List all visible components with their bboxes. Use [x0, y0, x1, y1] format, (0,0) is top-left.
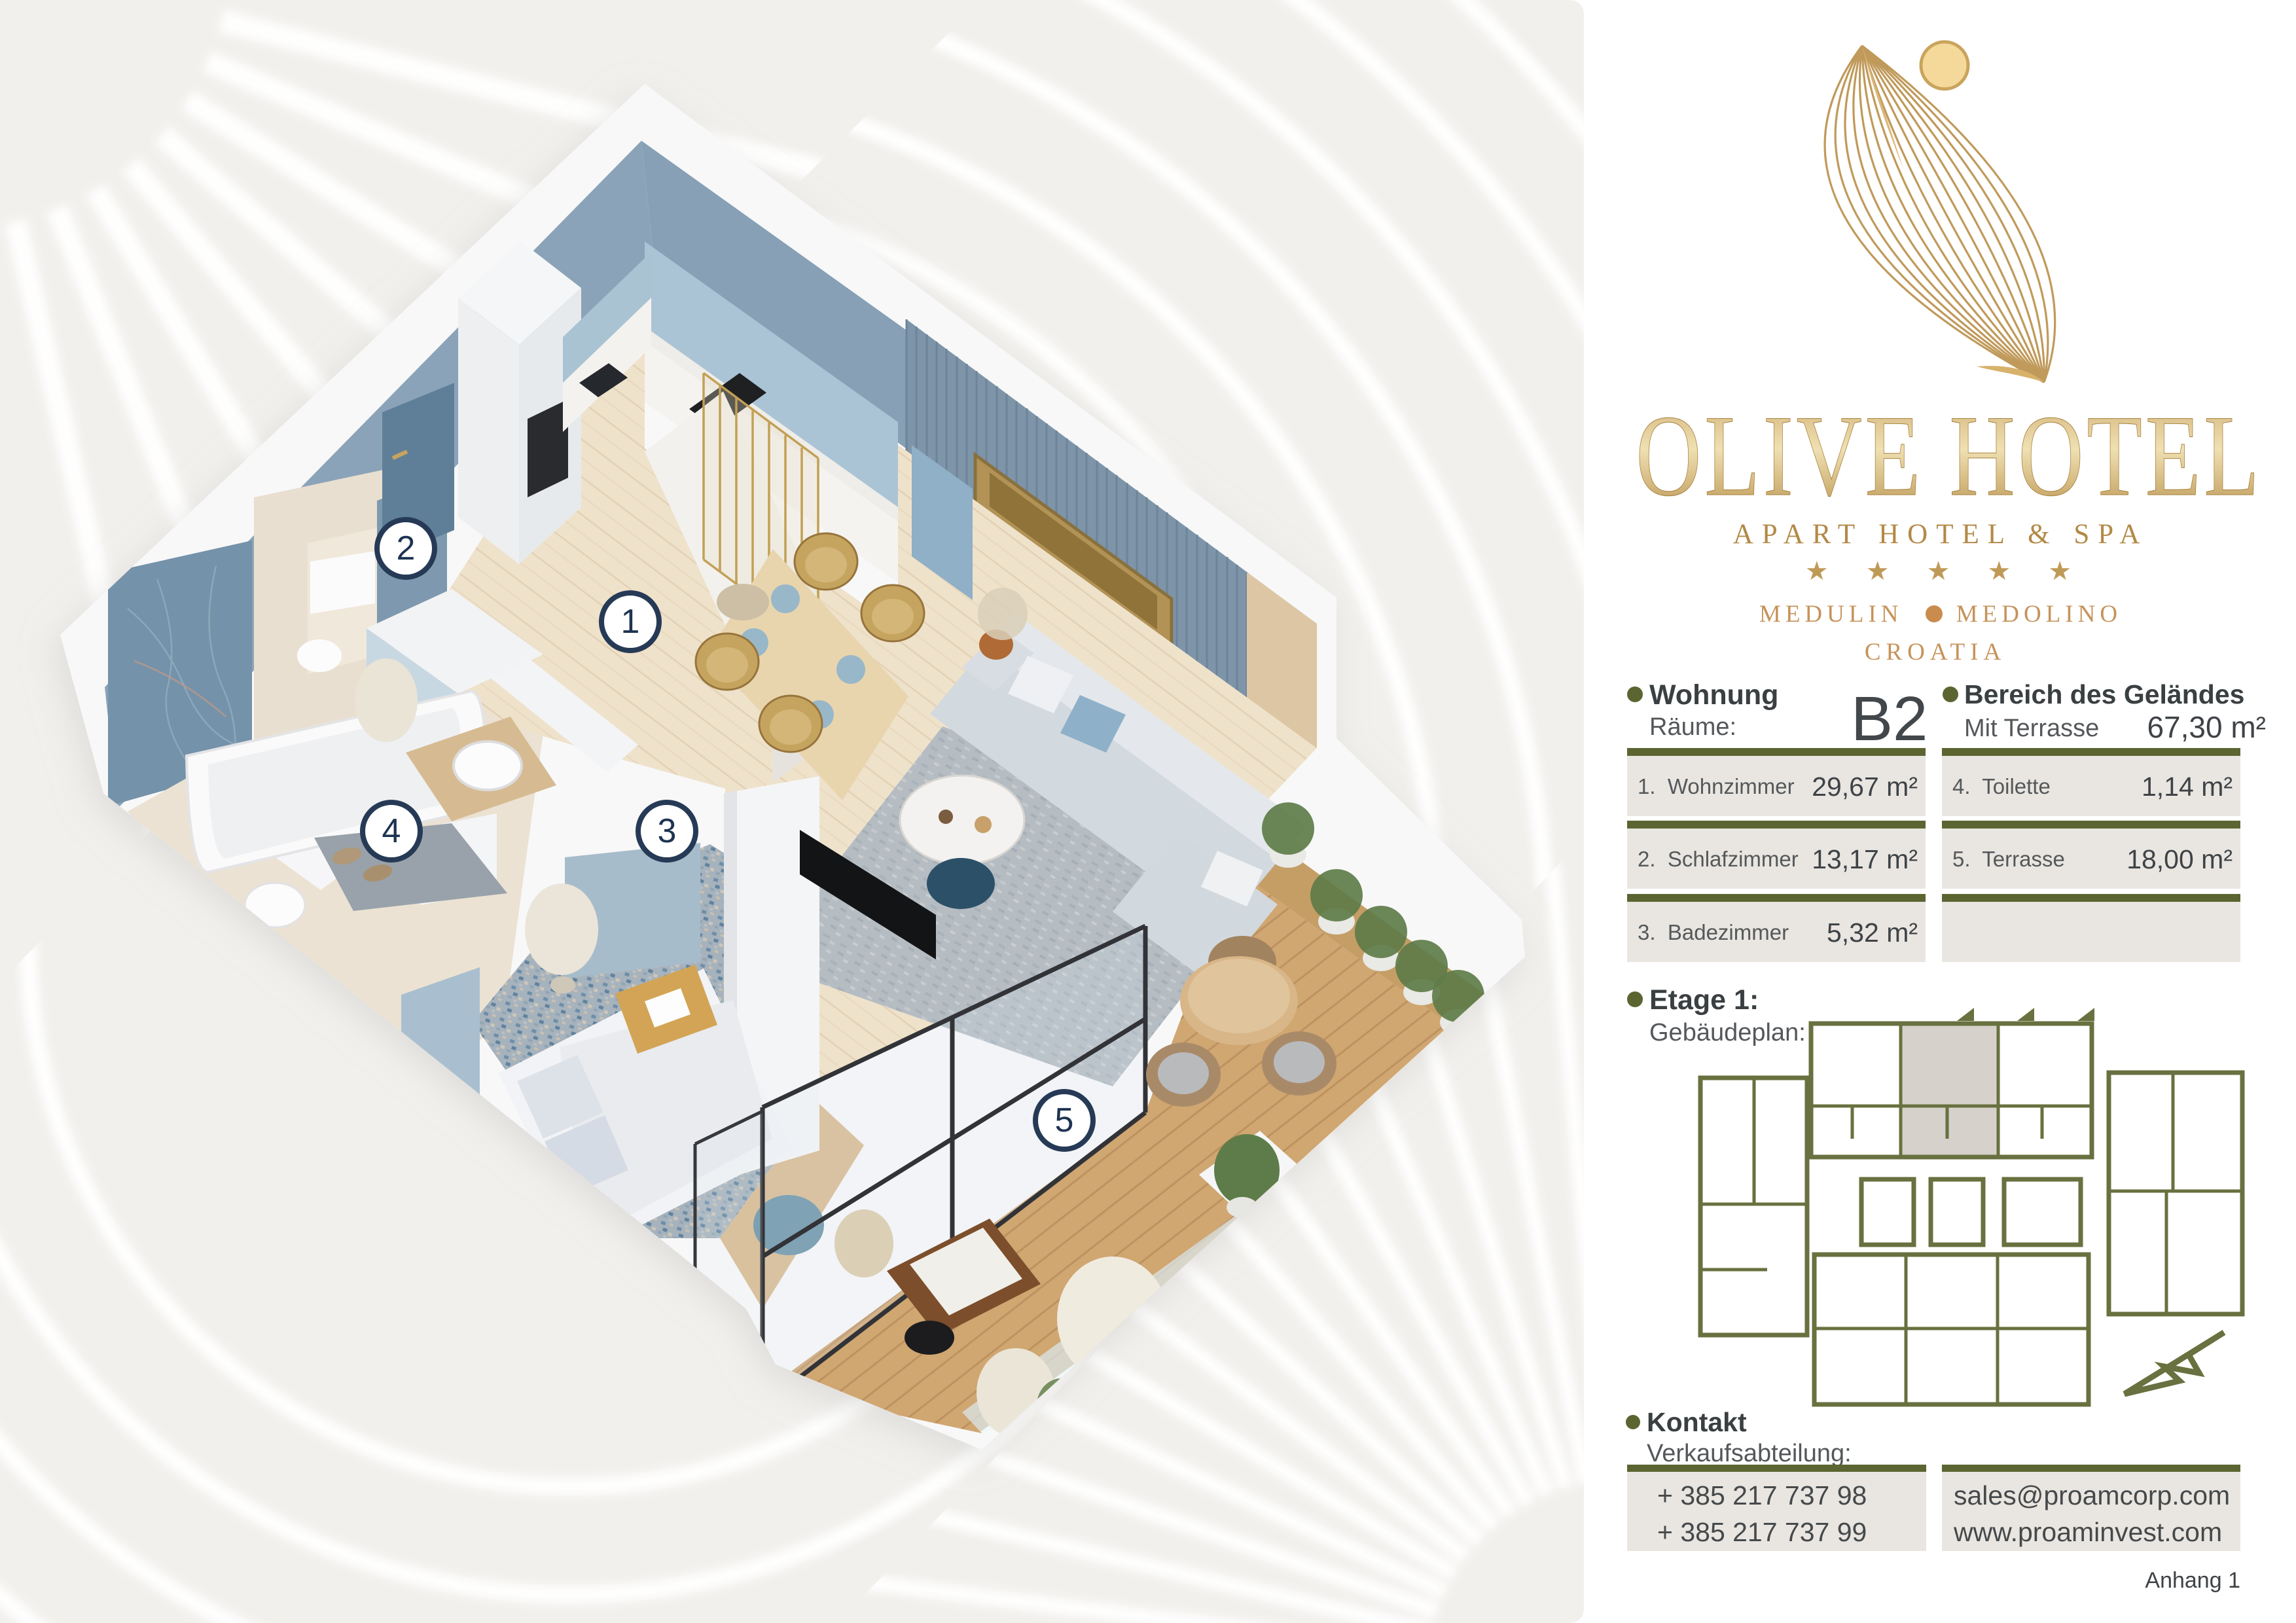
svg-text:2: 2 [397, 529, 416, 567]
svg-text:CROATIA: CROATIA [1865, 639, 2006, 666]
svg-text:5: 5 [1055, 1101, 1074, 1139]
svg-text:4: 4 [382, 812, 401, 850]
svg-text:APART HOTEL & SPA: APART HOTEL & SPA [1733, 519, 2149, 550]
svg-text:★★★★★: ★★★★★ [1805, 557, 2109, 586]
svg-text:OLIVE HOTEL: OLIVE HOTEL [1636, 391, 2262, 520]
svg-text:1: 1 [621, 603, 640, 641]
svg-text:3: 3 [658, 812, 677, 850]
